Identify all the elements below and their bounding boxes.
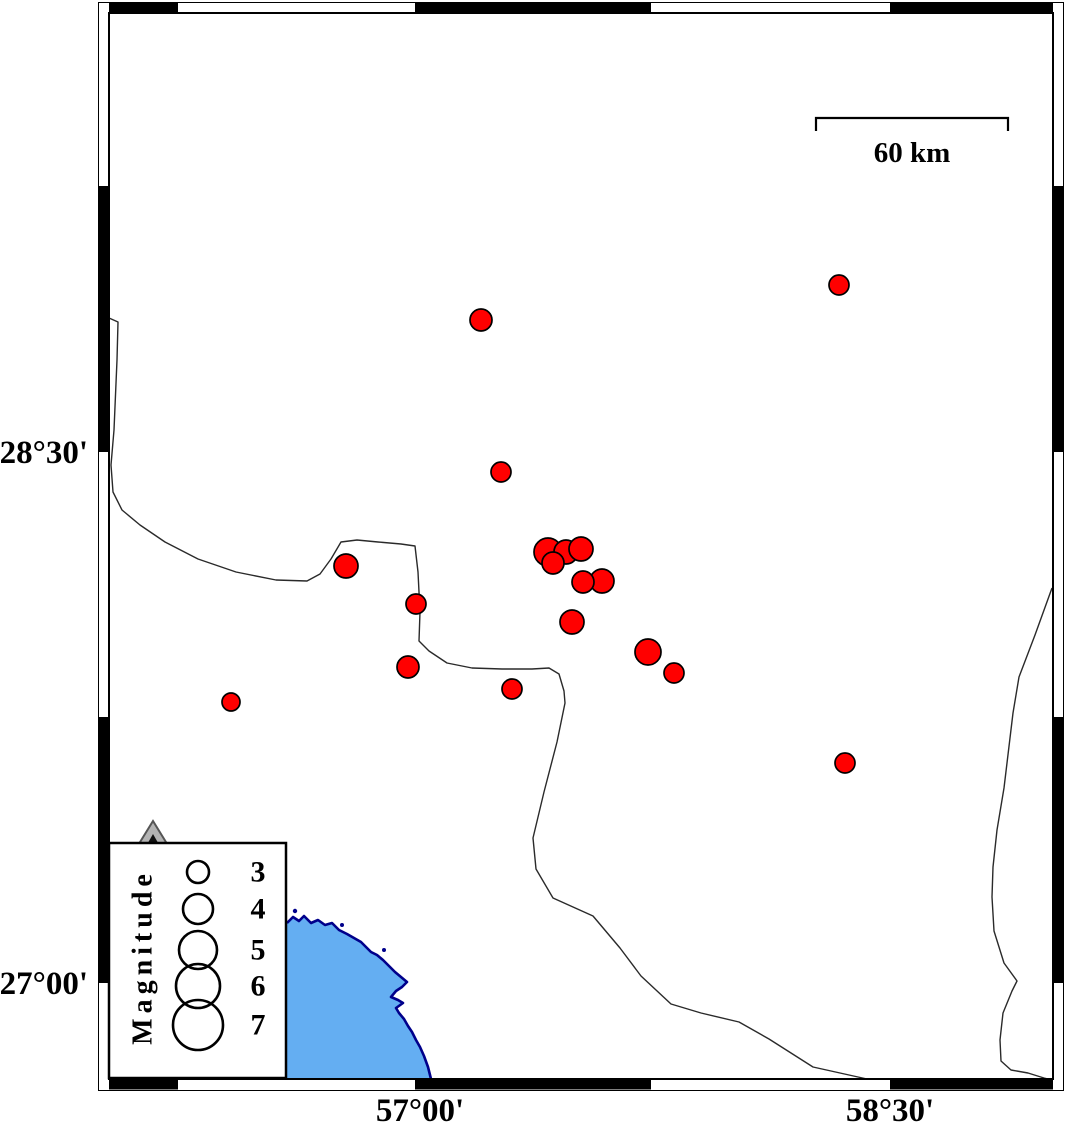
- earthquake-marker: [829, 275, 849, 295]
- islet: [293, 909, 297, 913]
- islet: [382, 948, 386, 952]
- legend-magnitude-label: 7: [251, 1009, 266, 1042]
- earthquake-marker: [470, 309, 492, 331]
- scale-bar-label: 60 km: [874, 137, 951, 169]
- earthquake-marker: [406, 594, 426, 614]
- legend-magnitude-label: 6: [251, 970, 266, 1003]
- seismicity-map: 60 km Magnitude 34567 28°30' 27°00' 57°0…: [0, 0, 1066, 1127]
- lon-label-58-30: 58°30': [846, 1093, 934, 1127]
- earthquake-marker: [502, 679, 522, 699]
- legend-magnitude-label: 5: [251, 934, 266, 967]
- legend-title: Magnitude: [128, 869, 159, 1045]
- islet: [340, 923, 344, 927]
- lat-label-27-00: 27°00': [0, 966, 88, 1002]
- earthquake-marker: [397, 656, 419, 678]
- lat-label-28-30: 28°30': [0, 435, 88, 471]
- magnitude-legend: Magnitude 34567: [109, 843, 286, 1078]
- earthquake-marker: [569, 537, 593, 561]
- earthquake-marker: [222, 693, 240, 711]
- seismicity-map-page: 60 km Magnitude 34567 28°30' 27°00' 57°0…: [0, 0, 1066, 1127]
- legend-magnitude-label: 4: [251, 893, 266, 926]
- earthquake-marker: [542, 552, 564, 574]
- earthquake-marker: [334, 554, 358, 578]
- legend-magnitude-label: 3: [251, 856, 266, 889]
- earthquake-marker: [635, 639, 661, 665]
- earthquake-marker: [835, 753, 855, 773]
- earthquake-marker: [491, 462, 511, 482]
- earthquake-marker: [572, 571, 594, 593]
- earthquake-marker: [664, 663, 684, 683]
- earthquake-marker: [560, 610, 584, 634]
- lon-label-57-00: 57°00': [376, 1093, 464, 1127]
